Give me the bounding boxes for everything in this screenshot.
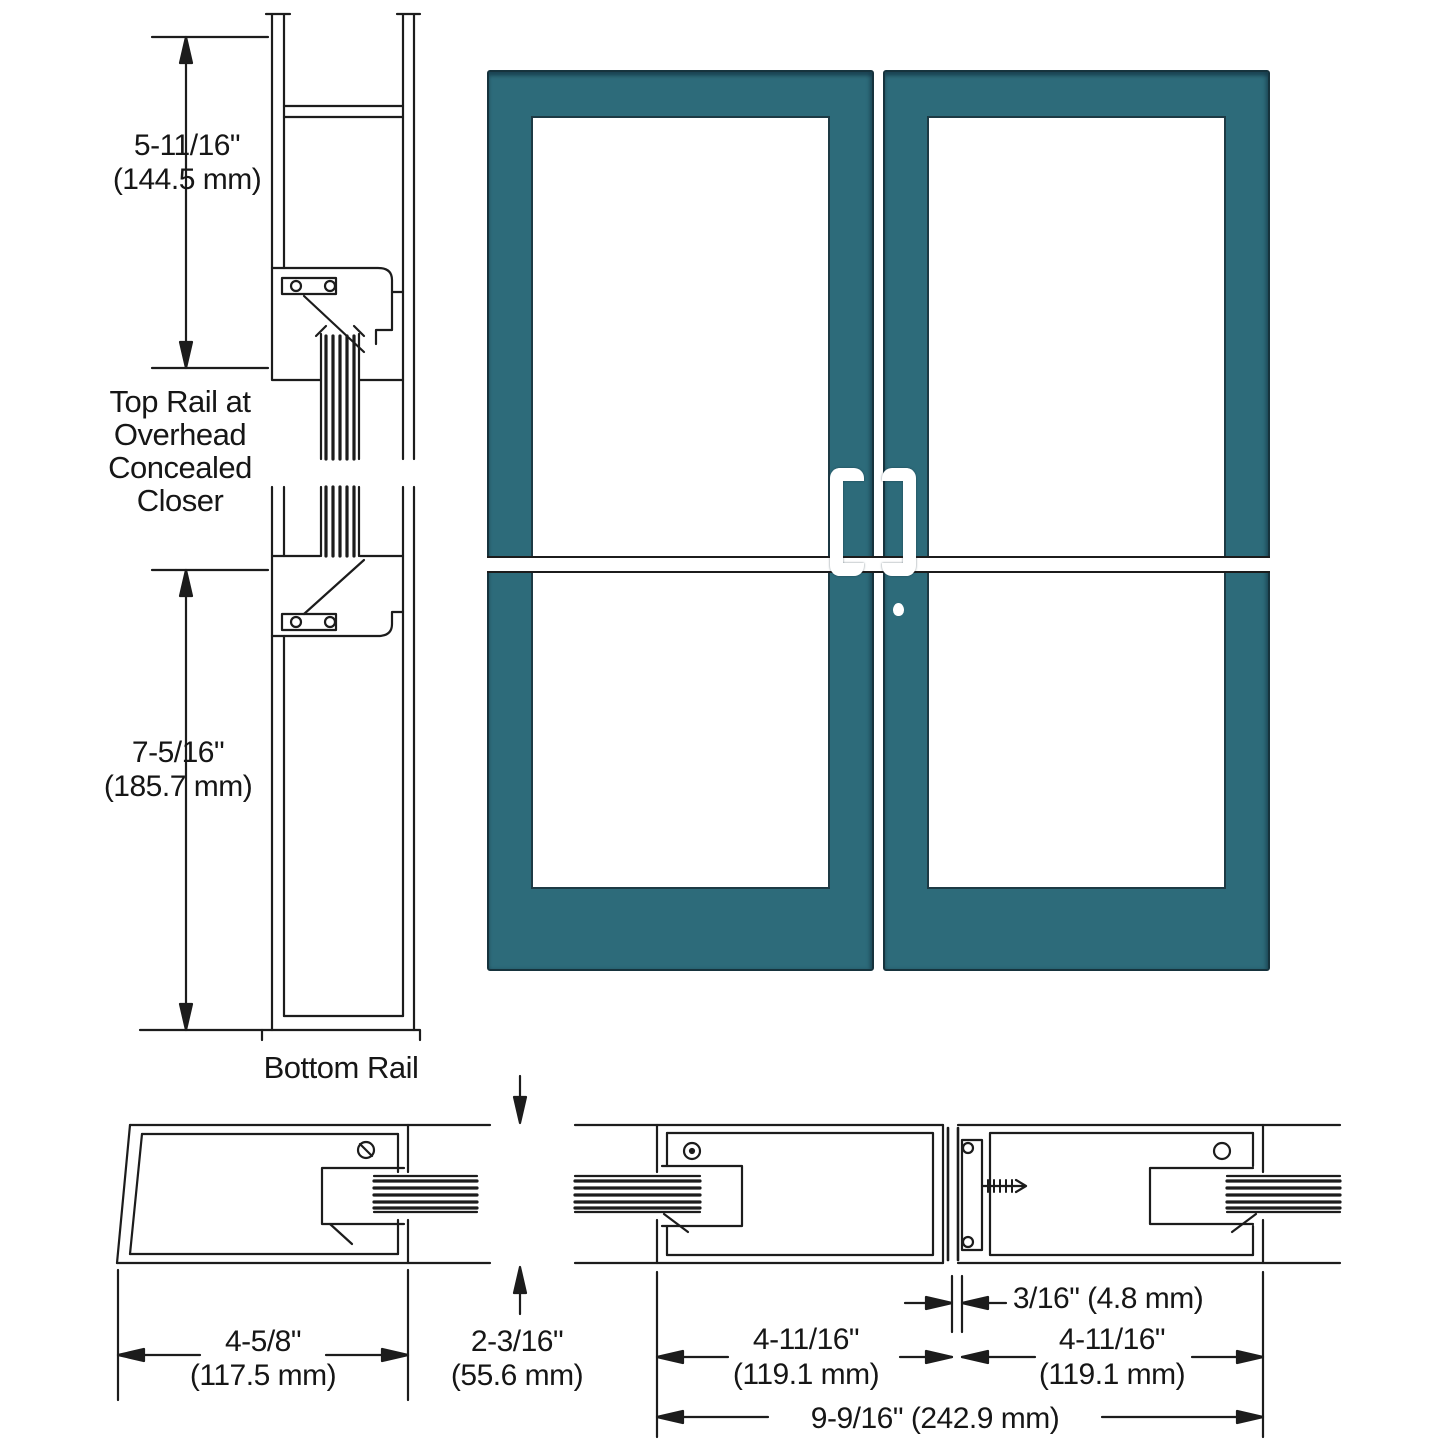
glass-hatch-left <box>374 1181 477 1208</box>
meeting-astragal-drawing <box>948 1128 1026 1260</box>
arrow-right-icon <box>926 1297 952 1309</box>
door-pair-elevation <box>487 70 1270 971</box>
right-door-leaf <box>883 70 1270 971</box>
bottom-rail-section-drawing <box>262 487 420 1040</box>
dim-left-leaf-mm: (119.1 mm) <box>733 1359 879 1391</box>
dim-top-rail-graphics <box>152 37 268 368</box>
dim-gap-label: 3/16" (4.8 mm) <box>1013 1283 1203 1315</box>
dim-rail-height-inches: 2-3/16" <box>471 1326 563 1358</box>
arrow-up-icon <box>180 570 192 596</box>
right-door-glass <box>927 116 1226 889</box>
strike-stile-section-drawing <box>958 1125 1340 1263</box>
arrow-down-icon <box>180 342 192 368</box>
dim-bottom-rail-inches: 7-5/16" <box>132 737 224 769</box>
top-rail-label-line3: Concealed <box>108 452 252 484</box>
left-pull-handle <box>830 468 864 576</box>
top-rail-label-line4: Closer <box>137 485 224 517</box>
arrow-left-icon <box>962 1351 988 1363</box>
right-pull-handle <box>882 468 916 576</box>
arrow-right-icon <box>926 1351 952 1363</box>
dim-hinge-stile-mm: (117.5 mm) <box>190 1360 336 1392</box>
dim-rail-height-mm: (55.6 mm) <box>451 1360 583 1392</box>
top-rail-label-line1: Top Rail at <box>110 386 251 418</box>
dim-top-rail-inches: 5-11/16" <box>134 130 240 162</box>
arrow-right-icon <box>1237 1411 1263 1423</box>
dim-left-leaf-inches: 4-11/16" <box>753 1324 859 1356</box>
hinge-stile-section-drawing <box>117 1125 490 1263</box>
arrow-right-icon <box>382 1349 408 1361</box>
glass-hatch-middle <box>575 1181 700 1208</box>
dim-bottom-rail-mm: (185.7 mm) <box>104 771 252 803</box>
dim-top-rail-mm: (144.5 mm) <box>113 164 261 196</box>
glass-hatch-right <box>1227 1181 1340 1208</box>
arrow-left-icon <box>657 1411 683 1423</box>
technical-drawing-page: { "colors":{ "door_frame_teal":"#2d6b7a"… <box>0 0 1445 1445</box>
glass-hatch-bottom <box>326 487 354 556</box>
cylinder-lock-dot <box>893 603 904 616</box>
bottom-rail-label: Bottom Rail <box>264 1052 419 1084</box>
arrow-left-icon <box>962 1297 988 1309</box>
arrow-down-icon <box>514 1097 526 1123</box>
arrow-left-icon <box>118 1349 144 1361</box>
arrow-up-icon <box>180 37 192 63</box>
mid-rail-band <box>487 556 1270 573</box>
arrow-right-icon <box>1237 1351 1263 1363</box>
left-door-leaf <box>487 70 874 971</box>
top-rail-label-line2: Overhead <box>114 419 246 451</box>
dim-right-leaf-inches: 4-11/16" <box>1059 1324 1165 1356</box>
glass-hatch-top <box>326 336 354 459</box>
arrow-up-icon <box>514 1267 526 1293</box>
left-door-glass <box>531 116 830 889</box>
arrow-left-icon <box>657 1351 683 1363</box>
arrow-down-icon <box>180 1004 192 1030</box>
top-rail-section-drawing <box>266 14 420 459</box>
lock-stile-section-drawing <box>575 1125 943 1263</box>
dim-total-label: 9-9/16" (242.9 mm) <box>811 1403 1059 1435</box>
dim-hinge-stile-inches: 4-5/8" <box>225 1326 301 1358</box>
dim-right-leaf-mm: (119.1 mm) <box>1039 1359 1185 1391</box>
